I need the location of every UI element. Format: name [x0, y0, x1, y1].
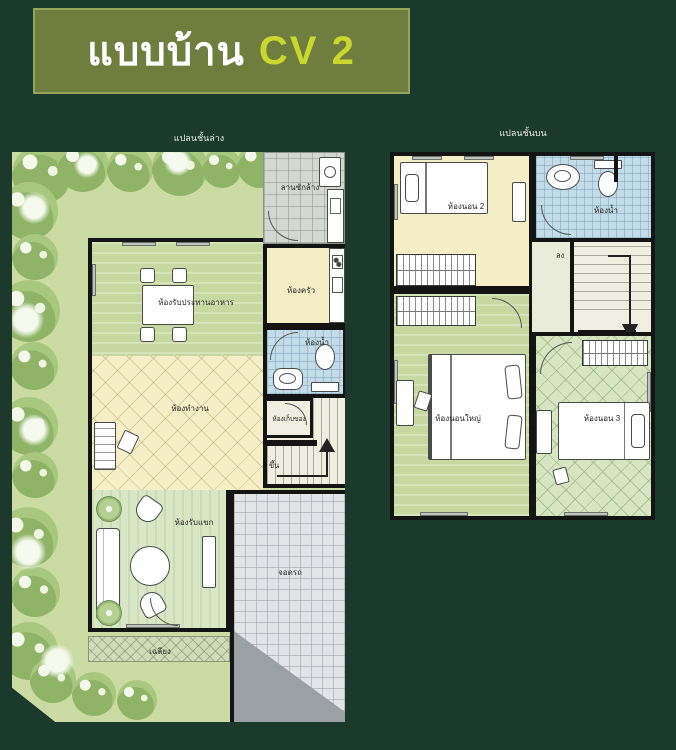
- bedroom-2: ห้องนอน 2: [390, 152, 532, 290]
- flower-cluster: [74, 152, 100, 178]
- pillow: [504, 414, 522, 449]
- window: [122, 242, 156, 246]
- wash-counter: [327, 189, 344, 243]
- parking-label: จอดรถ: [278, 566, 302, 579]
- dining-label: ห้องรับประทานอาหาร: [158, 296, 234, 309]
- upper-floor-caption: แปลนชั้นบน: [499, 126, 546, 140]
- stairs-up-arrow-icon: [269, 432, 345, 484]
- chair: [172, 268, 187, 283]
- ground-floor-plan: ลานซักล้าง ห้องครัว ห้องน้ำ: [12, 152, 345, 722]
- flower-cluster: [10, 534, 46, 570]
- tree: [72, 672, 116, 716]
- bedroom-3-label: ห้องนอน 3: [584, 412, 620, 425]
- window: [92, 264, 96, 296]
- sink-icon: [546, 164, 580, 190]
- uf-bathroom: ห้องน้ำ: [532, 152, 655, 242]
- page: แบบบ้าน CV 2 แปลนชั้นล่าง แปลนชั้นบน: [0, 0, 676, 750]
- pillow: [631, 414, 645, 448]
- window: [420, 512, 468, 516]
- washing-yard: ลานซักล้าง: [263, 152, 345, 244]
- pillow: [405, 174, 419, 202]
- porch-label: เฉลียง: [149, 645, 171, 658]
- armchair: [131, 493, 164, 526]
- desk: [94, 422, 116, 470]
- flower-cluster: [8, 302, 44, 338]
- window: [176, 242, 210, 246]
- partition-wall: [614, 156, 618, 182]
- tree: [10, 342, 58, 390]
- pillow: [504, 364, 522, 399]
- sink-icon: [273, 368, 303, 390]
- house-name-title: แบบบ้าน: [87, 19, 245, 83]
- parking: จอดรถ: [230, 490, 345, 722]
- bedroom-3: ห้องนอน 3: [532, 332, 655, 520]
- wardrobe: [396, 254, 476, 286]
- porch: เฉลียง: [88, 636, 230, 662]
- work-room: ห้องทำงาน: [88, 356, 263, 490]
- uf-bathroom-label: ห้องน้ำ: [594, 204, 618, 217]
- desk: [396, 380, 414, 426]
- window: [394, 184, 398, 220]
- door-arc: [540, 342, 572, 374]
- flower-cluster: [18, 414, 50, 446]
- door-arc: [150, 598, 178, 626]
- round-table: [130, 546, 170, 586]
- gf-stair-hall: ห้องเก็บของ ขึ้น: [263, 398, 345, 488]
- bedroom-2-label: ห้องนอน 2: [448, 200, 484, 213]
- door-arc: [541, 205, 571, 235]
- stairs-down-label: ลง: [556, 250, 564, 262]
- tree: [10, 567, 60, 617]
- toilet-tank: [311, 382, 339, 392]
- master-bedroom: ห้องนอนใหญ่: [390, 290, 532, 520]
- tv-cabinet: [512, 182, 526, 222]
- washing-machine-icon: [319, 157, 341, 187]
- door-arc: [268, 211, 298, 241]
- flower-cluster: [18, 192, 50, 224]
- washing-yard-label: ลานซักล้าง: [281, 181, 319, 194]
- driveway-slope: [234, 631, 345, 722]
- storage-label: ห้องเก็บของ: [272, 414, 305, 424]
- tree: [107, 146, 153, 192]
- gf-bathroom: ห้องน้ำ: [263, 326, 345, 398]
- chair: [117, 430, 140, 455]
- plant: [96, 496, 122, 522]
- chair: [140, 268, 155, 283]
- chair: [140, 327, 155, 342]
- dining-room: ห้องรับประทานอาหาร: [88, 238, 263, 356]
- window: [412, 156, 442, 160]
- window: [564, 512, 608, 516]
- plant: [96, 600, 122, 626]
- stairs-up-label: ขึ้น: [269, 460, 279, 472]
- wardrobe: [396, 296, 476, 326]
- chair: [552, 466, 570, 485]
- model-code: CV 2: [259, 29, 356, 74]
- tv-cabinet: [202, 536, 216, 588]
- door-arc: [492, 298, 522, 328]
- double-bed: [428, 354, 526, 460]
- flower-cluster: [164, 148, 192, 176]
- stove-icon: [332, 255, 343, 269]
- ground-floor-caption: แปลนชั้นล่าง: [174, 131, 224, 145]
- work-room-label: ห้องทำงาน: [171, 402, 209, 415]
- door-arc: [270, 332, 298, 360]
- desk: [536, 410, 552, 454]
- kitchen-sink-icon: [332, 277, 343, 293]
- kitchen-label: ห้องครัว: [287, 284, 315, 297]
- kitchen: ห้องครัว: [263, 244, 345, 326]
- kitchen-counter: [329, 248, 345, 323]
- living-room-label: ห้องรับแขก: [175, 516, 214, 529]
- tree: [12, 452, 58, 498]
- single-bed: [558, 402, 650, 460]
- wardrobe: [582, 340, 648, 366]
- tree: [202, 148, 242, 188]
- chair: [172, 327, 187, 342]
- title-banner: แบบบ้าน CV 2: [33, 8, 410, 94]
- tree: [117, 680, 157, 720]
- living-room: ห้องรับแขก: [88, 490, 230, 632]
- gf-bathroom-label: ห้องน้ำ: [305, 336, 329, 349]
- flower-cluster: [40, 644, 74, 678]
- window: [464, 156, 494, 160]
- upper-floor-plan: ลง ห้องนอน 2 ห้องน้ำ: [390, 152, 655, 520]
- tree: [12, 234, 58, 280]
- master-bedroom-label: ห้องนอนใหญ่: [435, 412, 481, 425]
